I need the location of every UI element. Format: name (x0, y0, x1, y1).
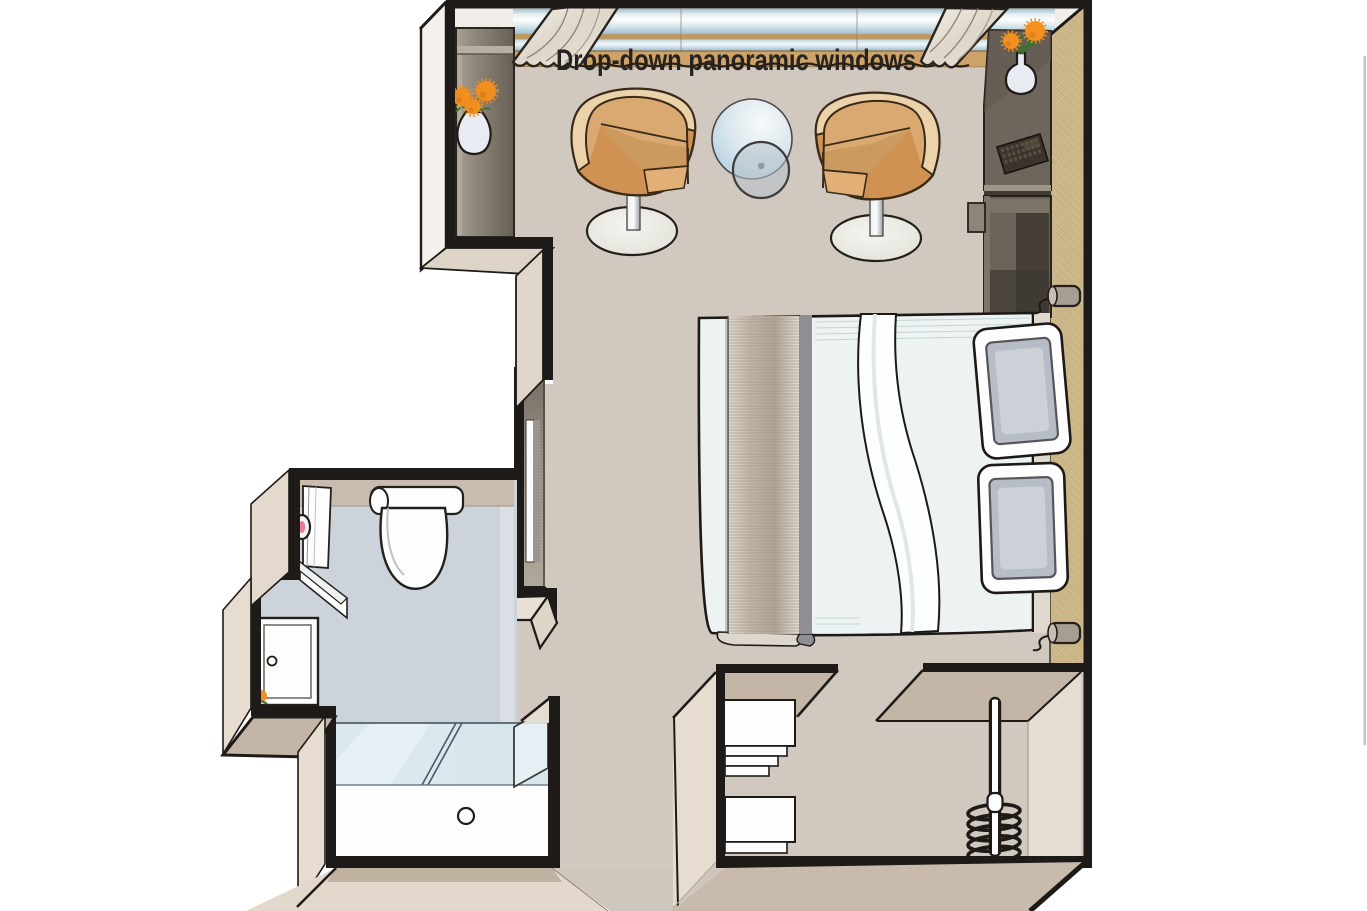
svg-text:Drop-down panoramic windows: Drop-down panoramic windows (556, 44, 916, 77)
